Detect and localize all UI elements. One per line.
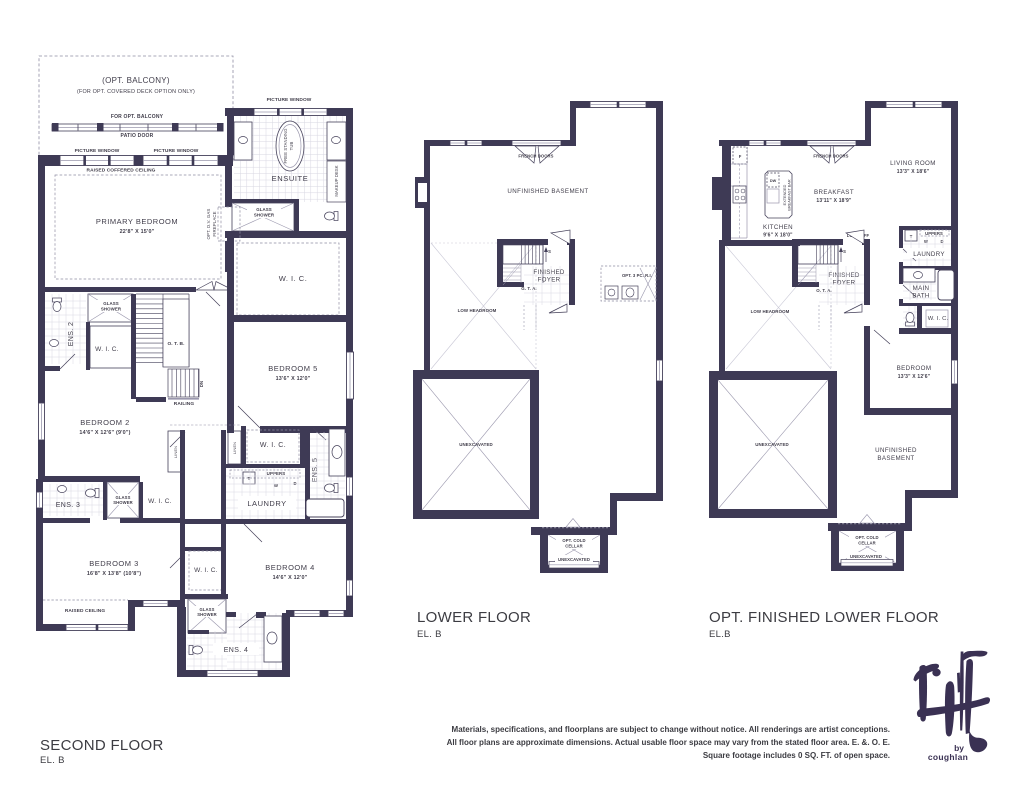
svg-text:coughlan: coughlan [928, 752, 968, 762]
svg-text:EL. B: EL. B [417, 629, 442, 640]
svg-text:22'8" X 15'0": 22'8" X 15'0" [120, 229, 155, 235]
svg-text:UNEXCAVATED: UNEXCAVATED [755, 442, 789, 447]
svg-text:W: W [924, 239, 928, 244]
svg-text:13'3" X 18'6": 13'3" X 18'6" [897, 169, 930, 175]
svg-text:W. I. C.: W. I. C. [928, 316, 949, 322]
svg-text:TUB: TUB [289, 142, 294, 151]
svg-text:W. I. C.: W. I. C. [194, 567, 218, 574]
svg-text:16'8" X 13'8" (10'8"): 16'8" X 13'8" (10'8") [87, 571, 141, 577]
svg-text:LINEN: LINEN [173, 446, 178, 458]
svg-text:PICTURE WINDOW: PICTURE WINDOW [154, 148, 199, 154]
svg-text:(OPT. BALCONY): (OPT. BALCONY) [102, 76, 170, 85]
svg-text:W. I. C.: W. I. C. [260, 442, 286, 449]
svg-text:W. I. C.: W. I. C. [279, 274, 308, 283]
svg-text:ENS. 2: ENS. 2 [68, 322, 75, 347]
svg-text:EXTENDED: EXTENDED [783, 184, 787, 205]
svg-text:BASEMENT: BASEMENT [877, 455, 914, 462]
svg-text:SHOWER: SHOWER [113, 500, 132, 505]
svg-text:LOW HEADROOM: LOW HEADROOM [751, 309, 790, 314]
svg-text:RAILING: RAILING [174, 401, 195, 407]
svg-text:13'6" X 12'0": 13'6" X 12'0" [276, 376, 311, 382]
svg-text:PICTURE WINDOW: PICTURE WINDOW [75, 148, 120, 154]
svg-text:S: S [548, 249, 551, 254]
svg-text:LINEN: LINEN [232, 442, 237, 454]
svg-text:UNFINISHED BASEMENT: UNFINISHED BASEMENT [507, 188, 588, 195]
svg-text:CELLAR: CELLAR [565, 544, 583, 549]
svg-text:FOR OPT. BALCONY: FOR OPT. BALCONY [111, 114, 164, 120]
svg-text:FOYER: FOYER [538, 277, 561, 284]
svg-text:UNFINISHED: UNFINISHED [875, 447, 917, 454]
svg-text:SECOND FLOOR: SECOND FLOOR [40, 737, 164, 754]
svg-text:FIREPLACE: FIREPLACE [212, 211, 217, 236]
svg-text:W. I. C.: W. I. C. [148, 498, 172, 505]
svg-text:OPT. D.V. GAS: OPT. D.V. GAS [206, 209, 211, 240]
svg-text:GLASS: GLASS [103, 301, 119, 306]
svg-text:BREAKFAST: BREAKFAST [814, 189, 854, 196]
svg-text:BEDROOM 3: BEDROOM 3 [89, 559, 139, 568]
svg-text:LOWER FLOOR: LOWER FLOOR [417, 609, 531, 626]
svg-text:All floor plans are approximat: All floor plans are approximate dimensio… [447, 738, 890, 747]
svg-text:OPT. FINISHED LOWER FLOOR: OPT. FINISHED LOWER FLOOR [709, 609, 939, 626]
svg-text:ENS. 3: ENS. 3 [56, 502, 81, 509]
svg-text:OPT. COLD: OPT. COLD [855, 535, 878, 540]
svg-text:S: S [843, 249, 846, 254]
svg-text:BREAKFAST BAR: BREAKFAST BAR [788, 179, 792, 210]
svg-text:SHOWER: SHOWER [254, 213, 275, 218]
svg-text:LOW HEADROOM: LOW HEADROOM [458, 308, 497, 313]
svg-text:UNEXCAVATED: UNEXCAVATED [558, 557, 590, 562]
svg-text:CELLAR: CELLAR [858, 541, 876, 546]
svg-text:OPT. 3 PC. R.I.: OPT. 3 PC. R.I. [622, 273, 652, 278]
svg-text:BEDROOM: BEDROOM [897, 365, 932, 372]
svg-text:PICTURE WINDOW: PICTURE WINDOW [267, 97, 312, 103]
svg-text:RAISED COFFERED CEILING: RAISED COFFERED CEILING [87, 168, 156, 174]
svg-text:F: F [739, 154, 742, 159]
svg-text:13'11" X 18'9": 13'11" X 18'9" [816, 198, 852, 204]
svg-text:Square footage includes 0 SQ.: Square footage includes 0 SQ. FT. of ope… [703, 751, 890, 760]
svg-text:LAUNDRY: LAUNDRY [913, 251, 945, 258]
svg-text:BEDROOM 4: BEDROOM 4 [265, 563, 315, 572]
svg-text:SHOWER: SHOWER [101, 307, 122, 312]
svg-text:DW: DW [770, 179, 777, 183]
svg-text:FRENCH DOORS: FRENCH DOORS [813, 154, 848, 159]
svg-text:LIVING ROOM: LIVING ROOM [890, 160, 936, 167]
svg-text:DN: DN [199, 381, 204, 387]
svg-text:OPT. COLD: OPT. COLD [562, 538, 585, 543]
svg-text:PRIMARY BEDROOM: PRIMARY BEDROOM [96, 217, 178, 226]
svg-text:EL.B: EL.B [709, 629, 731, 640]
svg-text:FOYER: FOYER [833, 280, 856, 287]
svg-text:KITCHEN: KITCHEN [763, 224, 793, 231]
svg-text:(FOR OPT. COVERED DECK OPTION: (FOR OPT. COVERED DECK OPTION ONLY) [77, 89, 195, 95]
svg-text:RAISED CEILING: RAISED CEILING [65, 608, 105, 614]
svg-text:13'3" X 12'6": 13'3" X 12'6" [898, 374, 931, 380]
svg-text:14'6" X 12'6" (9'0"): 14'6" X 12'6" (9'0") [79, 430, 130, 436]
svg-text:PATIO DOOR: PATIO DOOR [121, 133, 154, 139]
svg-text:O. T. A.: O. T. A. [816, 288, 832, 293]
svg-text:MAIN: MAIN [913, 285, 930, 292]
svg-text:ENSUITE: ENSUITE [272, 174, 309, 183]
svg-text:14'6" X 12'0": 14'6" X 12'0" [273, 575, 308, 581]
svg-text:ENS. 4: ENS. 4 [224, 647, 249, 654]
svg-text:FREE STANDING: FREE STANDING [283, 129, 288, 164]
svg-text:Materials, specifications, and: Materials, specifications, and floorplan… [452, 725, 890, 734]
svg-text:ENS. 5: ENS. 5 [312, 458, 319, 483]
svg-text:SHOWER: SHOWER [197, 612, 216, 617]
svg-text:FRENCH DOORS: FRENCH DOORS [518, 154, 553, 159]
svg-text:W. I. C.: W. I. C. [95, 346, 119, 353]
svg-text:LAUNDRY: LAUNDRY [247, 499, 286, 508]
svg-text:GLASS: GLASS [256, 207, 272, 212]
svg-text:9'6" X 18'0": 9'6" X 18'0" [763, 233, 793, 239]
svg-text:UPPERS: UPPERS [267, 471, 286, 476]
svg-text:UNEXCAVATED: UNEXCAVATED [459, 442, 493, 447]
svg-text:EL. B: EL. B [40, 755, 65, 766]
svg-text:D: D [293, 481, 296, 486]
svg-text:UNEXCAVATED: UNEXCAVATED [850, 554, 882, 559]
svg-text:BEDROOM 2: BEDROOM 2 [80, 418, 130, 427]
svg-text:G. T. A.: G. T. A. [521, 286, 537, 291]
svg-text:BEDROOM 5: BEDROOM 5 [268, 364, 318, 373]
svg-text:O. T. B.: O. T. B. [167, 341, 184, 347]
svg-text:BATH: BATH [912, 293, 929, 300]
svg-text:UPPERS: UPPERS [925, 231, 943, 236]
svg-text:MAKEUP DESK: MAKEUP DESK [334, 165, 339, 196]
